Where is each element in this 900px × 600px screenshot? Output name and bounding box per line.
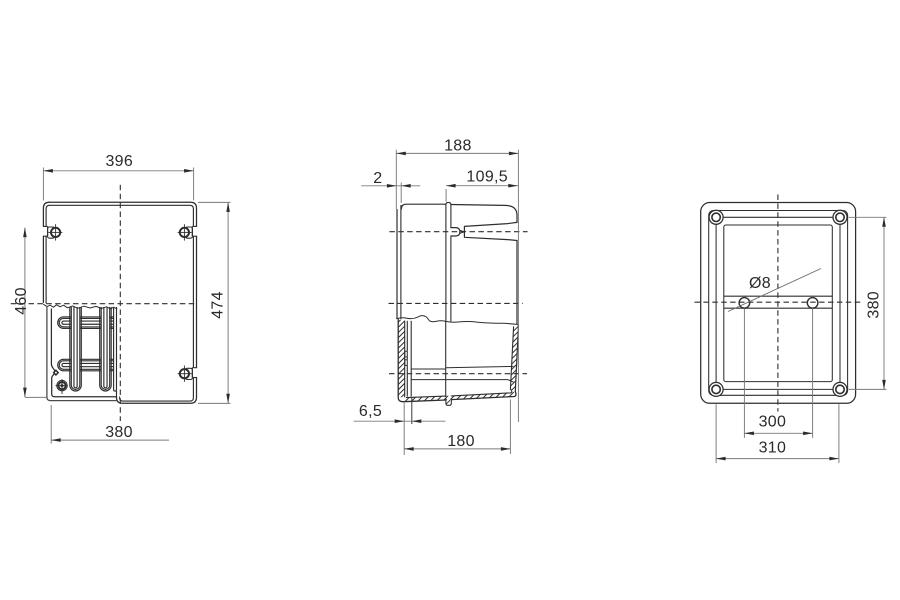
svg-text:2: 2 <box>373 170 382 187</box>
svg-text:380: 380 <box>105 424 133 441</box>
svg-text:188: 188 <box>444 138 472 155</box>
svg-text:6,5: 6,5 <box>359 403 382 420</box>
svg-text:396: 396 <box>105 153 133 170</box>
svg-text:310: 310 <box>759 439 787 456</box>
svg-text:474: 474 <box>210 291 227 319</box>
svg-text:460: 460 <box>13 287 30 315</box>
svg-text:380: 380 <box>865 291 882 319</box>
svg-text:300: 300 <box>759 414 787 431</box>
svg-text:109,5: 109,5 <box>466 169 508 186</box>
svg-text:180: 180 <box>447 433 475 450</box>
svg-text:Ø8: Ø8 <box>749 275 771 292</box>
